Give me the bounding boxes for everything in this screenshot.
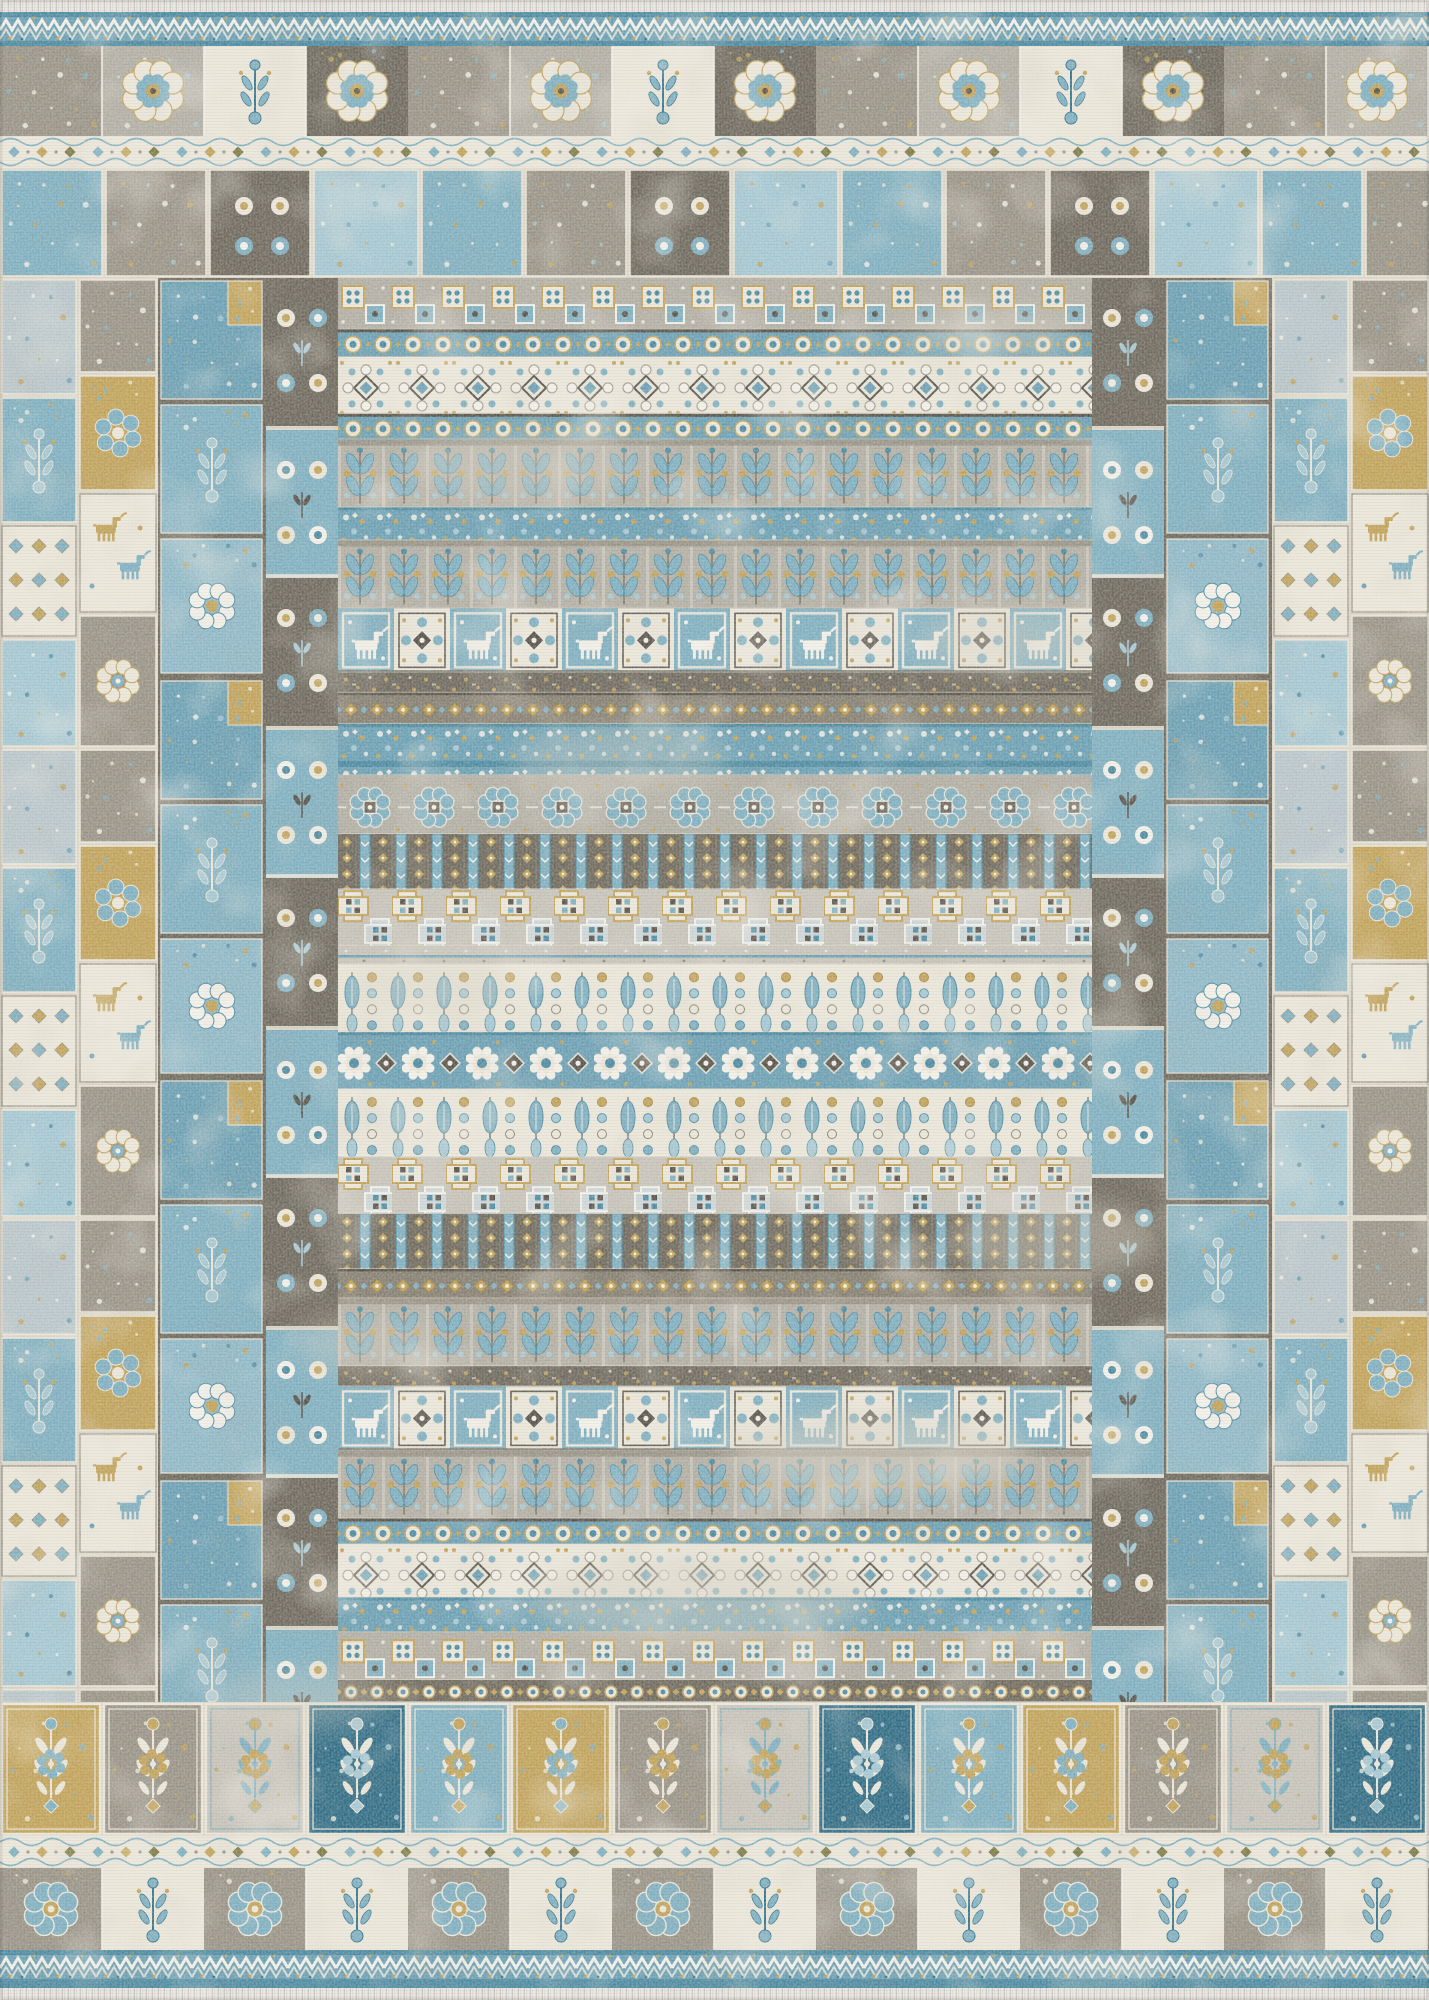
wear-spot: [345, 955, 515, 1015]
wear-spot: [530, 1555, 870, 1645]
wear-spot: [400, 434, 640, 502]
wear-spot: [950, 1200, 1160, 1280]
wear-spot: [510, 728, 730, 792]
rug-product-photo: [0, 0, 1429, 2000]
wear-spot: [915, 610, 1105, 670]
wear-spot: [890, 306, 1080, 358]
wear-spot: [210, 1670, 390, 1730]
rug-canvas: [0, 0, 1429, 2000]
wear-spot: [295, 1317, 445, 1373]
wear-spot: [730, 1413, 1030, 1497]
